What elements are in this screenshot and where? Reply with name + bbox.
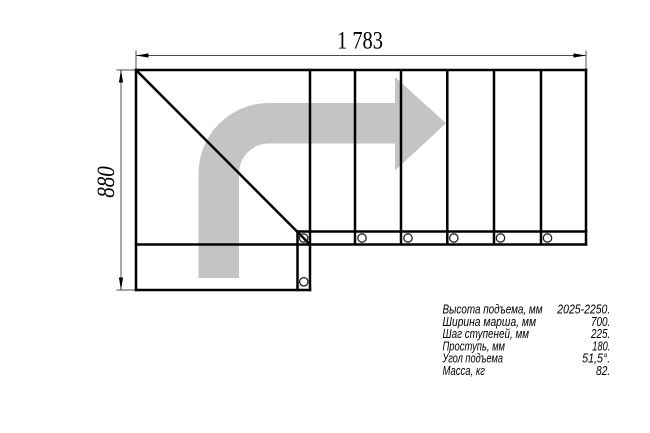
svg-text:1 783: 1 783 [337, 28, 383, 55]
svg-text:880: 880 [93, 166, 120, 198]
svg-text:Масса, кг: Масса, кг [443, 363, 486, 378]
svg-text:82.: 82. [596, 363, 610, 378]
